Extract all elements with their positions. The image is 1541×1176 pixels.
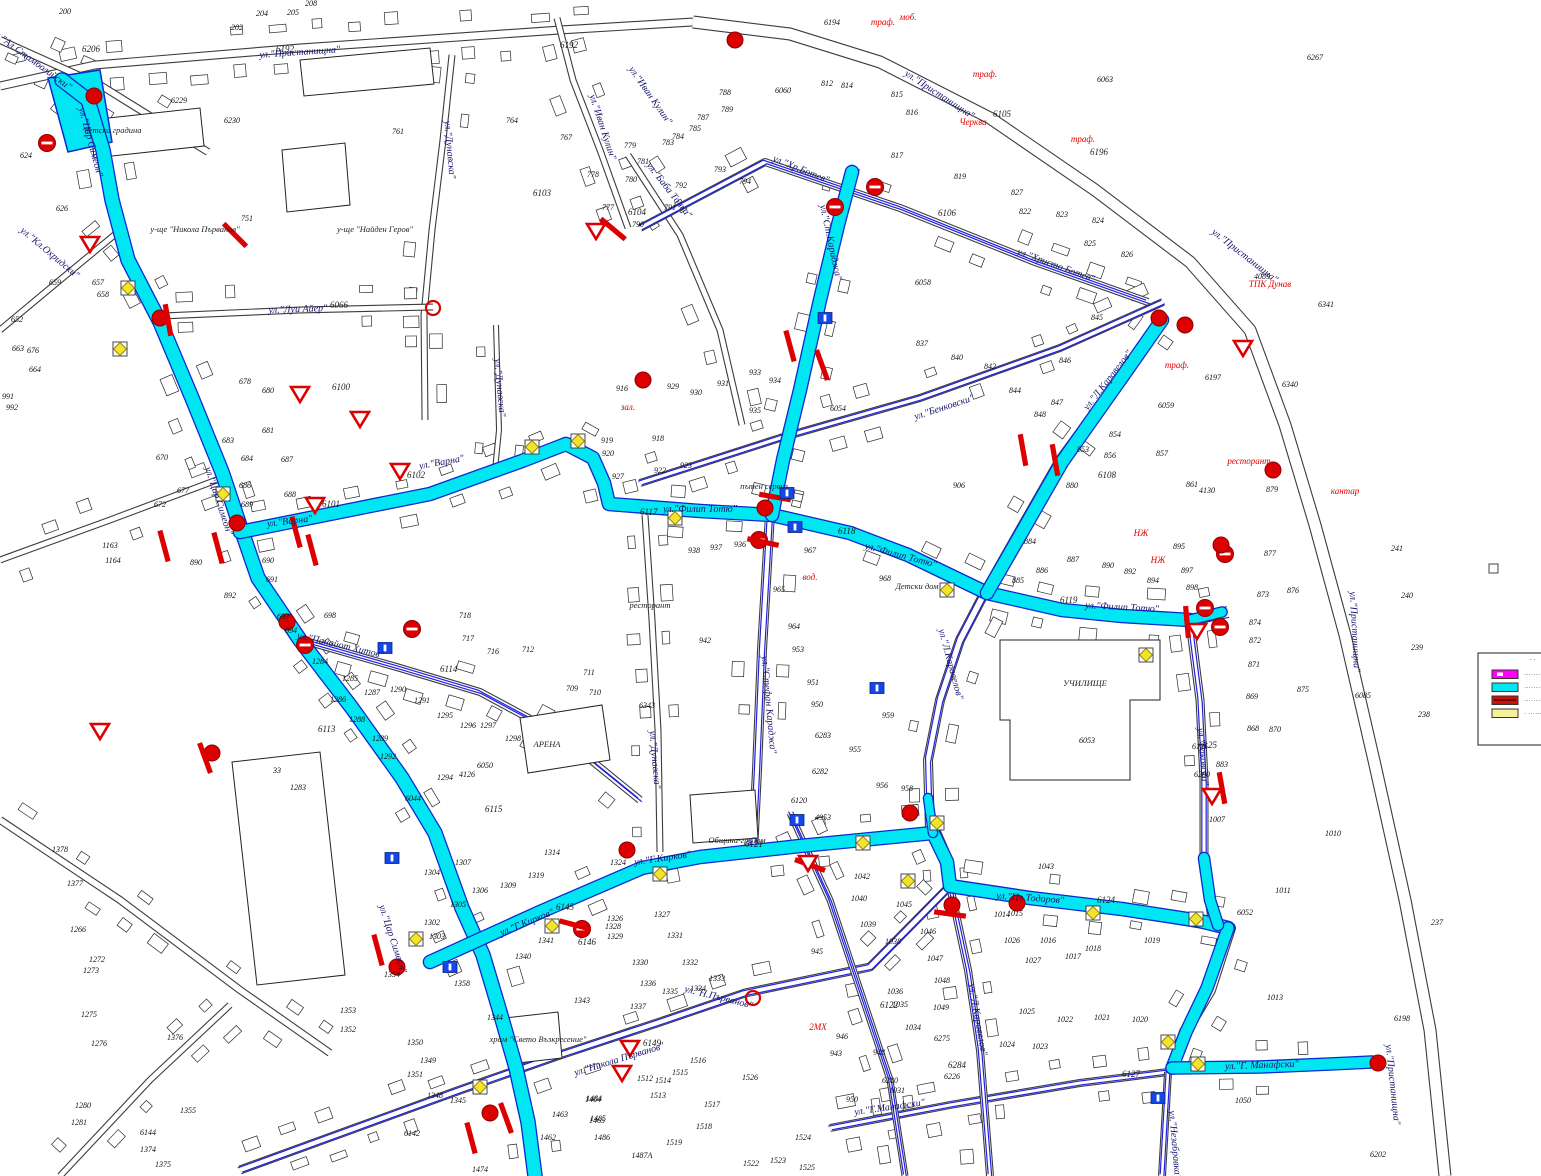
parcel-number: 1306: [472, 886, 488, 895]
parcel-number: 892: [224, 591, 236, 600]
poi-label-red: НЖ: [1150, 555, 1166, 565]
parcel-number: 241: [1391, 544, 1403, 553]
parcel-number: 1007: [1209, 815, 1226, 824]
parcel-number: 793: [714, 165, 726, 174]
legend-item-label: ··········: [1524, 671, 1541, 679]
parcel-number: 1518: [696, 1122, 712, 1131]
parcel-number: 1340: [515, 952, 531, 961]
priority-sign-icon: [1189, 912, 1203, 926]
parcel-number: 933: [749, 368, 761, 377]
road-id-label: 6284: [948, 1060, 967, 1070]
parcel-number: 6060: [775, 86, 791, 95]
poi-label: Община-гр.Лом: [708, 835, 766, 845]
parcel-number: 779: [624, 141, 636, 150]
parcel-number: 1350: [407, 1038, 423, 1047]
parcel-number: 815: [891, 90, 903, 99]
parcel-number: 789: [721, 105, 733, 114]
legend-route-magenta-swatch: [1492, 670, 1518, 679]
parcel-number: 1018: [1085, 944, 1101, 953]
legend-item-label: ·········: [1524, 697, 1541, 705]
stop-dot-sign-icon: [86, 88, 102, 104]
parcel-number: 1333: [709, 974, 725, 983]
parcel-number: 694: [285, 626, 297, 635]
parcel-number: 1045: [896, 900, 912, 909]
parcel-number: 1019: [1144, 936, 1160, 945]
no-entry-sign-icon: [39, 135, 56, 152]
parcel-number: 718: [459, 611, 471, 620]
parcel-number: 684: [241, 454, 253, 463]
parcel-number: 1266: [70, 925, 86, 934]
parcel-number: 712: [522, 645, 534, 654]
parcel-number: 942: [699, 636, 711, 645]
parcel-number: 872: [1249, 636, 1261, 645]
road-id-label: 6146: [578, 937, 597, 947]
parcel-number: 934: [769, 376, 781, 385]
parcel-number: 937: [710, 543, 723, 552]
parcel-number: 670: [156, 453, 168, 462]
parcel-number: 1524: [795, 1133, 811, 1142]
parcel-number: 1025: [1019, 1007, 1035, 1016]
parcel-number: 4130: [1199, 486, 1215, 495]
parcel-number: 1324: [610, 858, 626, 867]
parcel-number: 240: [1401, 591, 1413, 600]
poi-label-red: Черква: [959, 117, 987, 127]
parcel-number: 1281: [71, 1118, 87, 1127]
parcel-number: 1302: [424, 918, 440, 927]
street-label: ул."Луи Айер": [267, 303, 328, 316]
parcel-number: 6340: [1282, 380, 1298, 389]
parcel-number: 1015: [1007, 909, 1023, 918]
parking-sign-icon: [790, 815, 804, 826]
road-id-label: 6102: [407, 470, 426, 480]
stop-dot-sign-icon: [1213, 537, 1229, 553]
parking-sign-icon: [443, 962, 457, 973]
parcel-number: 672: [154, 500, 166, 509]
parcel-number: 943: [830, 1049, 842, 1058]
parcel-number: 861: [1186, 480, 1198, 489]
parcel-number: 1328: [605, 922, 621, 931]
parcel-number: 1289: [372, 734, 388, 743]
parcel-number: 1011: [1275, 886, 1290, 895]
parcel-number: 936: [734, 540, 746, 549]
parcel-number: 1047: [927, 954, 944, 963]
parcel-number: 698: [324, 611, 336, 620]
parcel-number: 822: [1019, 207, 1031, 216]
no-entry-sign-icon: [1197, 600, 1214, 617]
parcel-number: 717: [462, 634, 475, 643]
parcel-number: 964: [788, 622, 800, 631]
parcel-number: 781: [637, 157, 649, 166]
stop-dot-sign-icon: [1370, 1055, 1386, 1071]
parcel-number: 1375: [155, 1160, 171, 1169]
parcel-number: 812: [821, 79, 833, 88]
parcel-number: 1327: [654, 910, 671, 919]
parcel-number: 950: [846, 1095, 858, 1104]
parcel-number: 709: [566, 684, 578, 693]
parcel-number: 1294: [437, 773, 453, 782]
road-id-label: 6149: [643, 1038, 662, 1048]
parcel-number: 664: [29, 365, 41, 374]
parcel-number: 1462: [540, 1133, 556, 1142]
parcel-number: 823: [1056, 210, 1068, 219]
poi-label: у-ще "Никола Първанов": [149, 224, 240, 234]
parcel-number: 1309: [500, 881, 516, 890]
parcel-number: 785: [689, 124, 701, 133]
parcel-number: 927: [612, 472, 625, 481]
parcel-number: 876: [1287, 586, 1299, 595]
parcel-number: 930: [690, 388, 702, 397]
priority-sign-icon: [409, 932, 423, 946]
parcel-number: 847: [1051, 398, 1064, 407]
parcel-number: 1013: [1267, 993, 1283, 1002]
parcel-number: 1038: [885, 937, 901, 946]
parcel-number: 716: [487, 647, 499, 656]
parcel-number: 711: [583, 668, 594, 677]
stop-dot-sign-icon: [944, 897, 960, 913]
parcel-number: 208: [305, 0, 317, 8]
parcel-number: 658: [97, 290, 109, 299]
parcel-number: 1353: [340, 1006, 356, 1015]
parcel-number: 1335: [662, 987, 678, 996]
parcel-number: 6063: [1097, 75, 1113, 84]
parcel-number: 1330: [632, 958, 648, 967]
parcel-number: 1027: [1025, 956, 1042, 965]
road-id-label: 6117: [640, 507, 658, 517]
parcel-number: 1331: [667, 931, 683, 940]
parcel-number: 1517: [704, 1100, 721, 1109]
parking-sign-icon: [385, 853, 399, 864]
parcel-number: 1016: [1040, 936, 1056, 945]
poi-label-red: моб.: [899, 12, 917, 22]
parcel-number: 652: [11, 315, 23, 324]
parcel-number: 871: [1248, 660, 1260, 669]
parcel-number: 687: [281, 455, 294, 464]
road-id-label: 6118: [838, 526, 856, 536]
parcel-number: 868: [1247, 724, 1259, 733]
parcel-number: 895: [1173, 542, 1185, 551]
parcel-number: 1513: [650, 1091, 666, 1100]
poi-label: пътен сервиз: [740, 481, 789, 491]
parcel-number: 626: [56, 204, 68, 213]
poi-label: ресторант: [629, 600, 671, 610]
priority-sign-icon: [113, 342, 127, 356]
road-id-label: 6206: [82, 44, 101, 54]
parcel-number: 1298: [505, 734, 521, 743]
parcel-number: 897: [1181, 566, 1194, 575]
parcel-number: 1515: [672, 1068, 688, 1077]
parcel-number: 1304: [424, 868, 440, 877]
parcel-number: 680: [262, 386, 274, 395]
parcel-number: 238: [1418, 710, 1430, 719]
parcel-number: 1286: [330, 695, 346, 704]
parcel-number: 237: [1431, 918, 1444, 927]
parcel-number: 4953: [815, 813, 831, 822]
parcel-number: 624: [20, 151, 32, 160]
parcel-number: 6044: [405, 794, 421, 803]
parcel-number: 778: [587, 170, 599, 179]
parcel-number: 951: [807, 678, 819, 687]
parcel-number: 1296: [460, 721, 476, 730]
parcel-number: 845: [1091, 313, 1103, 322]
parcel-number: 1287: [364, 688, 381, 697]
road-id-label: 6105: [993, 109, 1012, 119]
parcel-number: 6200: [1194, 770, 1210, 779]
parcel-number: 1288: [349, 715, 365, 724]
parcel-number: 6058: [915, 278, 931, 287]
stop-dot-sign-icon: [635, 372, 651, 388]
parcel-number: 663: [12, 344, 24, 353]
parcel-number: 1305: [450, 900, 466, 909]
parking-sign-icon: [870, 683, 884, 694]
priority-sign-icon: [571, 434, 585, 448]
parcel-number: 657: [92, 278, 105, 287]
parcel-number: 6197: [1205, 373, 1222, 382]
poi-label-red: траф.: [973, 69, 997, 79]
parcel-number: 683: [222, 436, 234, 445]
parcel-number: 1046: [920, 927, 936, 936]
parcel-number: 780: [625, 175, 637, 184]
road-id-label: 6066: [330, 300, 349, 310]
parcel-number: 1010: [1325, 829, 1341, 838]
parcel-number: 837: [916, 339, 929, 348]
parcel-number: 816: [906, 108, 918, 117]
parcel-number: 6343: [639, 701, 655, 710]
parcel-number: 6280: [882, 1076, 898, 1085]
parcel-number: 1276: [91, 1039, 107, 1048]
priority-sign-icon: [930, 816, 944, 830]
parcel-number: 827: [1011, 188, 1024, 197]
parcel-number: 677: [177, 486, 190, 495]
parcel-number: 880: [1066, 481, 1078, 490]
parcel-number: 787: [697, 113, 710, 122]
parcel-number: 814: [841, 81, 853, 90]
parcel-number: 1026: [1004, 936, 1020, 945]
parcel-number: 890: [1102, 561, 1114, 570]
poi-label-red: вод.: [803, 572, 818, 582]
road-id-label: 6124: [1097, 895, 1116, 905]
parcel-number: 783: [662, 138, 674, 147]
parcel-number: 1284: [312, 657, 328, 666]
parcel-number: 1343: [574, 996, 590, 1005]
poi-label: Детски дом: [895, 581, 940, 591]
parcel-number: 1040: [851, 894, 867, 903]
parcel-number: 1280: [75, 1101, 91, 1110]
priority-sign-icon: [121, 281, 135, 295]
parcel-number: 1291: [414, 696, 430, 705]
road-id-label: 6196: [1090, 147, 1109, 157]
parcel-number: 204: [256, 9, 268, 18]
legend-item-label: ·········: [1524, 684, 1541, 692]
parcel-number: 825: [1084, 239, 1096, 248]
parcel-number: 239: [1411, 643, 1423, 652]
parcel-number: 1374: [140, 1145, 156, 1154]
parcel-number: 6125: [1192, 742, 1208, 751]
parcel-number: 992: [6, 403, 18, 412]
parcel-number: 1275: [81, 1010, 97, 1019]
parcel-number: 33: [272, 766, 281, 775]
parcel-number: 1039: [860, 920, 876, 929]
parcel-number: 1352: [340, 1025, 356, 1034]
parcel-number: 6229: [171, 96, 187, 105]
parcel-number: 6059: [1158, 401, 1174, 410]
parcel-number: 1377: [67, 879, 84, 888]
parcel-number: 1329: [607, 932, 623, 941]
parcel-number: 945: [811, 947, 823, 956]
stop-dot-sign-icon: [902, 805, 918, 821]
parcel-number: 686: [239, 481, 251, 490]
parcel-number: 6283: [815, 731, 831, 740]
parcel-number: 846: [1059, 356, 1071, 365]
parcel-number: 853: [1077, 445, 1089, 454]
poi-label-red: зал.: [620, 402, 635, 412]
parcel-number: 991: [2, 392, 14, 401]
parcel-number: 959: [882, 711, 894, 720]
parcel-number: 842: [984, 362, 996, 371]
no-entry-sign-icon: [1212, 619, 1229, 636]
parcel-number: 1036: [887, 987, 903, 996]
parcel-number: 1332: [682, 958, 698, 967]
parcel-number: 920: [602, 449, 614, 458]
no-entry-sign-icon: [867, 179, 884, 196]
parcel-number: 690: [262, 556, 274, 565]
priority-sign-icon: [1139, 648, 1153, 662]
parcel-number: 1463: [552, 1110, 568, 1119]
poi-label-red: кантар: [1331, 486, 1360, 496]
parcel-number: 856: [1104, 451, 1116, 460]
parcel-number: 1337: [630, 1002, 647, 1011]
parcel-number: 946: [836, 1032, 848, 1041]
parcel-number: 6085: [1355, 691, 1371, 700]
parcel-number: 689: [241, 500, 253, 509]
parcel-number: 6194: [824, 18, 840, 27]
parcel-number: 767: [560, 133, 573, 142]
parcel-number: 200: [59, 7, 71, 16]
parcel-number: 1290: [390, 685, 406, 694]
parcel-number: 6275: [934, 1034, 950, 1043]
parcel-number: 1334: [690, 984, 706, 993]
cadastral-map-viewport[interactable]: ул."Пристанищна"ул."Пристанищна"ул."Прис…: [0, 0, 1541, 1176]
parcel-number: 1519: [666, 1138, 682, 1147]
parcel-number: 817: [891, 151, 904, 160]
parcel-number: 857: [1156, 449, 1169, 458]
parcel-number: 1348: [427, 1091, 443, 1100]
parcel-number: 854: [1109, 430, 1121, 439]
parcel-number: 1163: [102, 541, 117, 550]
parcel-number: 870: [1269, 725, 1281, 734]
parcel-number: 953: [792, 645, 804, 654]
parcel-number: 1307: [455, 858, 472, 867]
stop-dot-sign-icon: [1151, 310, 1167, 326]
parcel-number: 1345: [450, 1096, 466, 1105]
parcel-number: 922: [654, 466, 666, 475]
parcel-number: 1024: [999, 1040, 1015, 1049]
parcel-number: 879: [1266, 485, 1278, 494]
parcel-number: 950: [811, 700, 823, 709]
priority-sign-icon: [1086, 906, 1100, 920]
parcel-number: 1486: [594, 1133, 610, 1142]
parcel-number: 1512: [637, 1074, 653, 1083]
map-canvas[interactable]: ул."Пристанищна"ул."Пристанищна"ул."Прис…: [0, 0, 1541, 1176]
parcel-number: 958: [901, 784, 913, 793]
parcel-number: 890: [190, 558, 202, 567]
parcel-number: 1378: [52, 845, 68, 854]
road-id-label: 6104: [628, 207, 647, 217]
parcel-number: 1043: [1038, 862, 1054, 871]
parcel-number: 676: [27, 346, 39, 355]
parcel-number: 916: [616, 384, 628, 393]
poi-label: АРЕНА: [533, 739, 562, 749]
parcel-number: 1355: [180, 1106, 196, 1115]
priority-sign-icon: [473, 1080, 487, 1094]
parcel-number: 6282: [812, 767, 828, 776]
parcel-number: 1164: [105, 556, 120, 565]
priority-sign-icon: [1191, 1057, 1205, 1071]
poi-label: храм "Свето Възкресение": [489, 1034, 587, 1044]
parcel-number: 1042: [854, 872, 870, 881]
parcel-number: 6267: [1307, 53, 1324, 62]
parcel-number: 681: [262, 426, 274, 435]
parcel-number: 892: [1124, 567, 1136, 576]
stop-dot-sign-icon: [619, 842, 635, 858]
parcel-number: 1341: [538, 936, 554, 945]
parcel-number: 761: [392, 127, 404, 136]
parcel-number: 898: [1186, 583, 1198, 592]
road-id-label: 6114: [440, 664, 458, 674]
parcel-number: 6202: [1370, 1150, 1386, 1159]
parcel-number: 1349: [420, 1056, 436, 1065]
parcel-number: 6341: [1318, 300, 1334, 309]
parcel-number: 1522: [743, 1159, 759, 1168]
legend-item-label: · ·······: [1524, 710, 1541, 718]
poi-label: УЧИЛИЩЕ: [1063, 678, 1107, 688]
parcel-number: 1048: [934, 976, 950, 985]
priority-sign-icon: [545, 919, 559, 933]
stop-dot-sign-icon: [727, 32, 743, 48]
parcel-number: 1526: [742, 1073, 758, 1082]
parcel-number: 873: [1257, 590, 1269, 599]
parcel-number: 840: [951, 353, 963, 362]
parcel-number: 1023: [1032, 1042, 1048, 1051]
parcel-number: 6198: [1394, 1014, 1410, 1023]
parcel-number: 883: [1216, 760, 1228, 769]
poi-label-red: 2МХ: [809, 1022, 827, 1032]
parcel-number: 659: [49, 278, 61, 287]
parking-sign-icon: [1151, 1093, 1165, 1104]
road-id-label: 6192: [276, 44, 295, 54]
parcel-number: 1034: [905, 1023, 921, 1032]
parcel-number: 1525: [799, 1163, 815, 1172]
parcel-number: 710: [589, 688, 601, 697]
parcel-number: 1272: [89, 955, 105, 964]
road-id-label: 6108: [1098, 470, 1117, 480]
parcel-number: 788: [719, 88, 731, 97]
priority-sign-icon: [653, 867, 667, 881]
parcel-number: 967: [804, 546, 817, 555]
parcel-number: 965: [773, 585, 785, 594]
parcel-number: 6120: [791, 796, 807, 805]
parcel-number: 919: [601, 436, 613, 445]
poi-label-red: траф.: [871, 17, 895, 27]
road-id-label: 6103: [533, 188, 552, 198]
parcel-number: 1376: [167, 1033, 183, 1042]
road-id-label: 6106: [938, 208, 957, 218]
parcel-number: 1297: [480, 721, 497, 730]
parcel-number: 848: [1034, 410, 1046, 419]
parcel-number: 1485: [590, 1114, 606, 1123]
parcel-number: 1514: [655, 1076, 671, 1085]
parcel-number: 791: [664, 203, 676, 212]
priority-sign-icon: [856, 836, 870, 850]
